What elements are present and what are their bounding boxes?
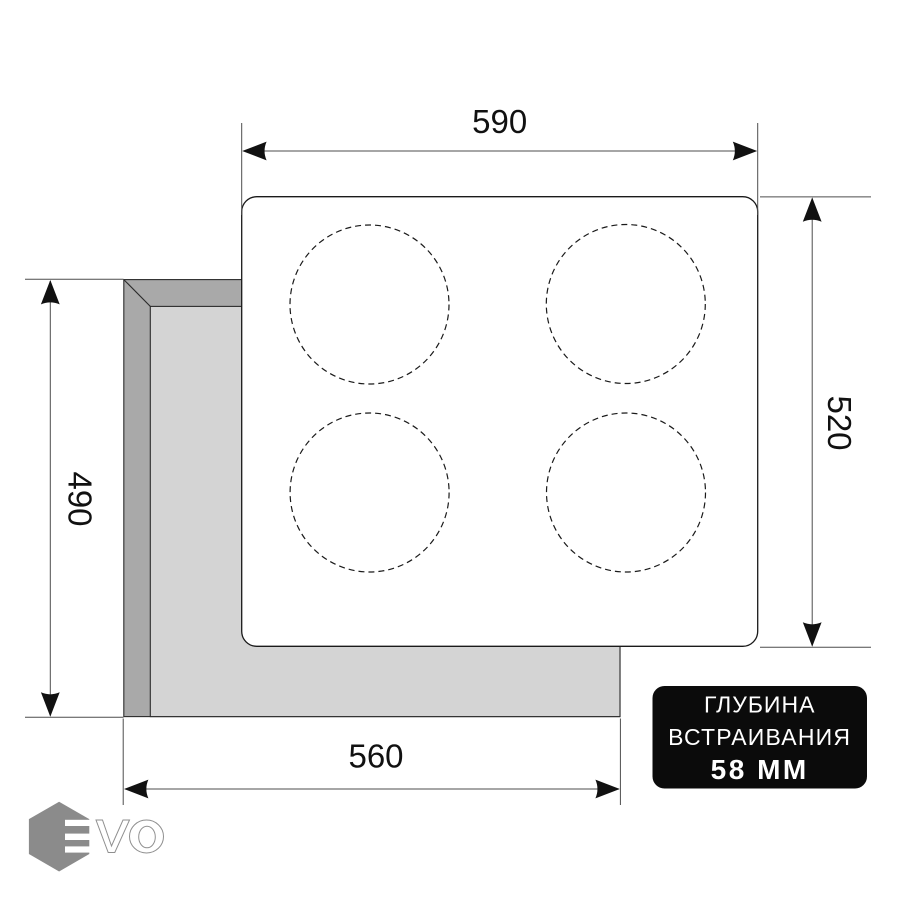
svg-text:ВСТРАИВАНИЯ: ВСТРАИВАНИЯ — [668, 724, 851, 750]
svg-text:ГЛУБИНА: ГЛУБИНА — [704, 692, 815, 718]
svg-text:560: 560 — [348, 738, 403, 775]
svg-text:58 ММ: 58 ММ — [711, 754, 809, 785]
svg-text:490: 490 — [62, 471, 99, 526]
svg-text:520: 520 — [821, 395, 858, 450]
svg-text:590: 590 — [472, 103, 527, 140]
